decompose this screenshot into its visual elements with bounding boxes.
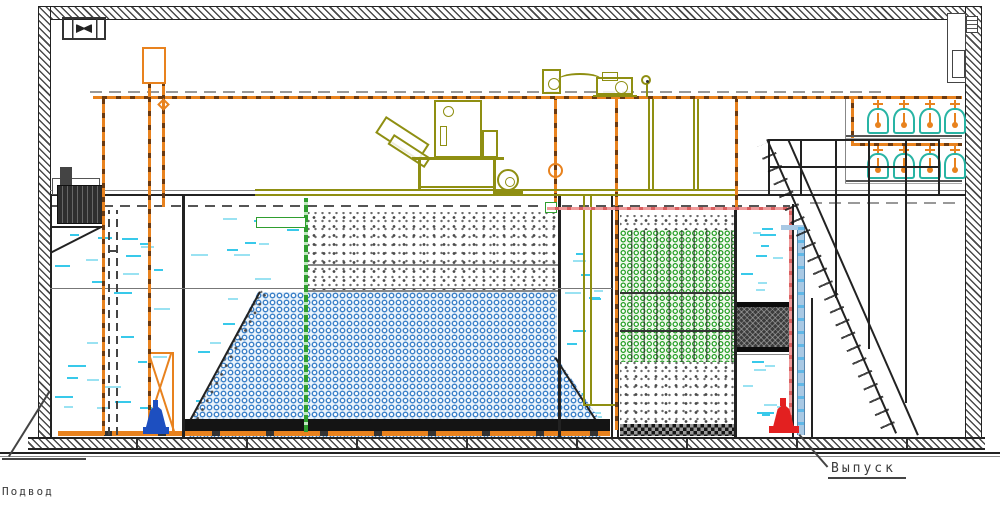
- dosing-unit: [867, 108, 889, 134]
- water-dash: [245, 242, 256, 244]
- dosing-unit: [944, 153, 966, 179]
- inlet-screen-unit: [57, 185, 103, 224]
- clearwell-line: [736, 354, 792, 355]
- mid-tie-line: [50, 288, 612, 289]
- shelf-row1: [845, 135, 962, 137]
- pump-stub: [780, 398, 786, 406]
- outlet-pump: [768, 398, 800, 436]
- ventilation-fan-icon: [62, 17, 106, 40]
- water-dash: [55, 265, 70, 267]
- dosing-unit: [919, 108, 941, 134]
- screen-motor: [60, 167, 72, 185]
- biofilter-tie-line: [620, 292, 734, 294]
- pump-base: [143, 427, 169, 434]
- outlet-label: Выпуск: [831, 461, 896, 476]
- transfer-pipe-vertical: [789, 207, 792, 427]
- water-dash: [154, 308, 171, 310]
- water-dash: [228, 298, 238, 300]
- water-dash: [227, 249, 238, 251]
- water-dash: [567, 343, 577, 345]
- water-dash: [198, 351, 210, 353]
- pump-body: [146, 405, 166, 427]
- biofilter-underdrain-grid: [620, 424, 734, 436]
- inlet-submersible-pump: [143, 400, 169, 434]
- dosing-unit: [893, 108, 915, 134]
- valve-icon-2: [548, 163, 563, 178]
- water-dash: [741, 273, 753, 275]
- water-dash: [752, 361, 764, 363]
- aeration-plate: [185, 419, 610, 431]
- pipe-drop-olive: [697, 99, 699, 190]
- inlet-label-line: Подвод: [2, 486, 62, 498]
- railing-mid-rail: [768, 166, 940, 168]
- pump-body: [773, 404, 794, 427]
- water-dash: [138, 361, 147, 363]
- water-dash: [743, 385, 752, 387]
- water-dash: [754, 369, 766, 371]
- blower-base: [593, 95, 637, 97]
- wall-inlet-aeration: [182, 194, 185, 437]
- water-dash: [592, 298, 601, 300]
- water-dash: [756, 255, 767, 257]
- water-dash: [126, 255, 141, 257]
- outlet-chamber-wall: [811, 298, 813, 437]
- ceiling-slab: [38, 6, 982, 20]
- water-dash: [259, 243, 268, 245]
- transfer-pipe-horizontal: [547, 207, 792, 210]
- water-dash: [55, 396, 73, 398]
- treatment-plant-section-drawing: Подвод сточных вод на очистку Выпуск: [0, 0, 1000, 512]
- biofilter-bottom-gravel: [620, 362, 734, 424]
- water-dash: [123, 273, 139, 275]
- air-drop-inlet-tank: [102, 99, 105, 435]
- feed-pump: [497, 169, 519, 191]
- screen-bracket-h: [50, 226, 102, 228]
- water-dash: [191, 254, 208, 256]
- water-dash: [223, 218, 237, 220]
- water-dash: [762, 228, 773, 230]
- feed-pump-base: [493, 191, 523, 194]
- ventilation-duct: [947, 13, 966, 83]
- equipment-table-top: [412, 157, 504, 160]
- media-support-line-2: [308, 290, 558, 292]
- water-dash: [121, 336, 134, 338]
- water-dash: [87, 342, 98, 344]
- railing-post: [938, 139, 940, 196]
- valve-icon: [157, 98, 170, 111]
- wall-biofilter-clearwell: [734, 206, 737, 437]
- platform-dashed-line: [810, 202, 960, 204]
- railing-post: [905, 139, 907, 196]
- media-support-line: [308, 264, 558, 266]
- channel-pipe-1: [583, 196, 585, 406]
- pipe-rack-axis: [90, 91, 882, 93]
- water-dash: [68, 365, 85, 367]
- pipe-drop-olive: [693, 99, 695, 190]
- water-dash: [594, 290, 603, 292]
- water-dash: [287, 229, 298, 231]
- water-dash: [765, 365, 776, 367]
- water-dash: [234, 254, 250, 256]
- air-main-pipe: [93, 96, 962, 99]
- stand-valve-head: [641, 75, 651, 85]
- water-dash: [70, 234, 79, 236]
- water-dash: [773, 257, 783, 259]
- floor-slab: [28, 437, 985, 450]
- water-dash: [255, 278, 271, 280]
- stair-support-post: [905, 196, 907, 403]
- water-dash: [86, 259, 98, 261]
- pipe-drop-olive: [652, 99, 654, 190]
- cabinet-side-panel: [482, 130, 498, 158]
- pump-base: [769, 426, 799, 433]
- airlift-head-box: [142, 47, 166, 84]
- water-dash: [761, 245, 769, 247]
- biofilter-support-rods: [620, 230, 734, 362]
- railing-post: [868, 139, 870, 196]
- water-dash: [210, 342, 221, 344]
- carbon-filter-block: [736, 302, 792, 352]
- inlet-baffle-dashed: [108, 210, 110, 435]
- right-wall: [965, 6, 982, 438]
- dosing-unit: [944, 108, 966, 134]
- air-diffuser-pipe: [58, 431, 610, 436]
- inlet-baffle-tie: [108, 250, 118, 252]
- water-dash: [756, 289, 764, 291]
- inlet-baffle-dashed-2: [116, 210, 118, 435]
- inlet-label-underline: [2, 458, 86, 460]
- shelf-post: [845, 99, 846, 183]
- water-dash: [122, 238, 137, 240]
- wall-channel-biofilter: [611, 194, 613, 437]
- airlift-return-pipe: [304, 198, 308, 432]
- vent-grille-icon: [966, 16, 978, 33]
- biofilter-tie-line-2: [620, 330, 734, 332]
- airlift-pipe-1: [148, 83, 151, 433]
- channel-pipe-elbow: [583, 404, 615, 406]
- water-dash: [223, 323, 236, 325]
- water-dash: [64, 406, 73, 408]
- water-dash: [760, 234, 775, 236]
- biofilter-top-gravel: [620, 215, 734, 230]
- water-dash: [154, 269, 163, 271]
- railing-top-rail: [768, 139, 940, 141]
- shelf-row2-edge: [845, 183, 962, 184]
- inlet-label: Подвод сточных вод на очистку: [2, 461, 62, 512]
- wall-aeration-channel: [558, 194, 561, 437]
- tank-wall-left-face: [50, 194, 52, 437]
- air-drop-biofilter: [615, 99, 618, 430]
- water-dash: [87, 379, 99, 381]
- outlet-label-underline: [828, 477, 906, 479]
- air-blower: [596, 77, 633, 95]
- return-trough: [256, 217, 306, 228]
- stand-valve-stem: [646, 83, 648, 97]
- shelf-row2: [845, 180, 962, 182]
- water-dash: [565, 292, 581, 294]
- air-drop-wall: [735, 99, 738, 209]
- ground-line: [0, 452, 1000, 454]
- pipe-drop-olive: [648, 99, 650, 190]
- table-shelf: [418, 186, 496, 188]
- ground-line-2: [0, 456, 1000, 457]
- control-cabinet: [434, 100, 482, 158]
- water-dash: [67, 377, 77, 379]
- water-dash: [758, 282, 767, 284]
- railing-post: [835, 139, 837, 196]
- channel-pipe-2: [590, 196, 592, 406]
- walkway-pipe-2: [255, 194, 735, 196]
- floating-media-bed: [308, 212, 558, 292]
- pump-stub: [153, 400, 158, 407]
